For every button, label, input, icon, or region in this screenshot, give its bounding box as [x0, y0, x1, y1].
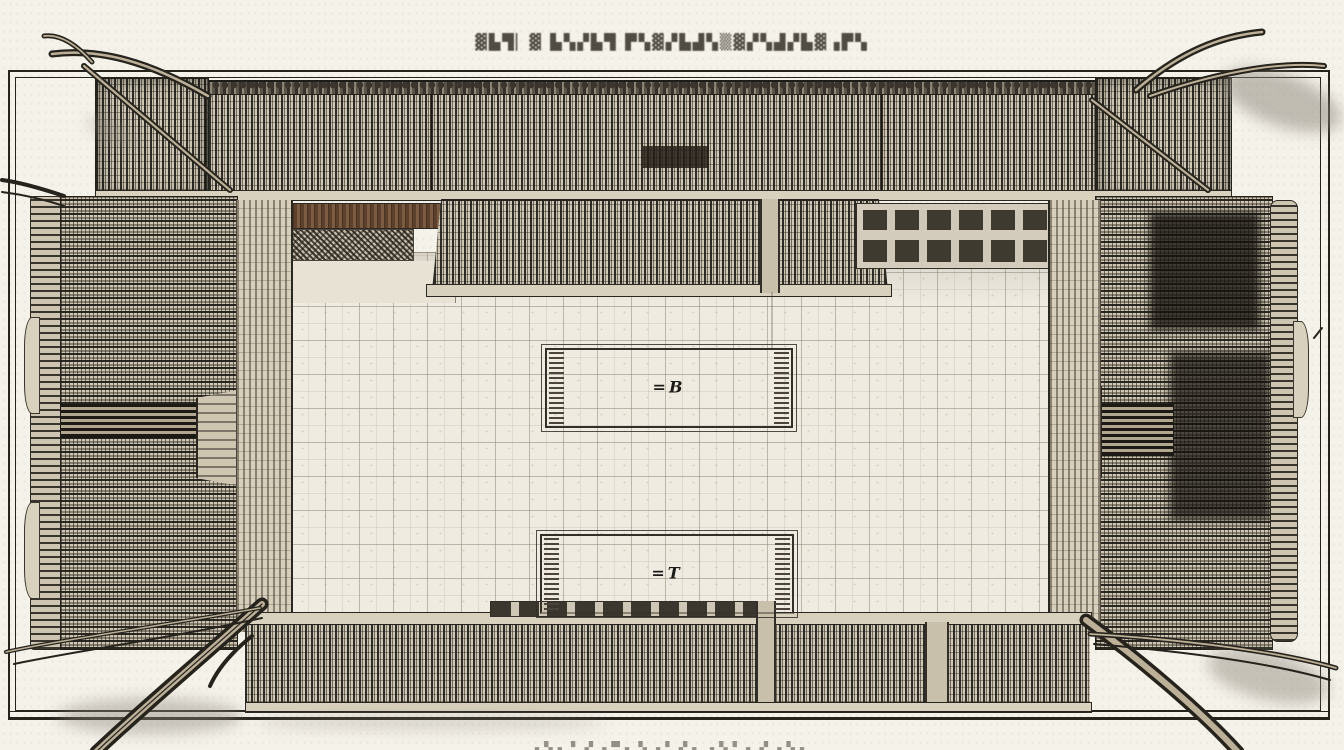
- north-roof-seam: [880, 94, 882, 192]
- west-outer-rafter-edge: [30, 196, 62, 650]
- bottom-caption-clipped: ▗▚▖▘▞▗▀▖▚▗▘▞▖▗▚▘▖▞▗▚▖: [0, 741, 1344, 750]
- inner-north-roof-tiles: [432, 199, 888, 291]
- south-roof-tiles: [245, 624, 1090, 711]
- east-inner-eave-edge: [1048, 200, 1101, 632]
- plan-title-text: ▓▙▜▏▓ ▙▚▞▙▜ ▛▚▓▞▙▟▚▒▓▞▚▟▞▙▓▗▛▚: [0, 33, 1344, 51]
- inner-north-eave-edge: [426, 284, 892, 297]
- lower-platform-label: =T: [542, 564, 792, 583]
- east-outer-rafter-edge: [1270, 200, 1298, 642]
- architectural-plan-canvas: =B =T: [0, 0, 1344, 750]
- upper-platform-label: =B: [547, 378, 791, 397]
- north-roof-seam: [205, 94, 207, 192]
- east-roof-shadow-patch: [1170, 352, 1270, 520]
- lower-platform: =T: [540, 534, 794, 614]
- east-stair-slats: [1092, 404, 1174, 456]
- south-pillar: [756, 601, 776, 711]
- west-eave-bracket: [24, 502, 40, 599]
- courtyard-pillar: [760, 199, 780, 293]
- upper-platform: =B: [545, 348, 793, 428]
- northwest-corner-tower-roof: [95, 78, 209, 198]
- east-eave-bracket: [1293, 321, 1309, 418]
- west-eave-bracket: [24, 317, 40, 414]
- frame-bottom-line: [8, 717, 1328, 719]
- east-roof-shadow-patch: [1150, 212, 1260, 330]
- north-roof-vent: [643, 146, 709, 168]
- northeast-corner-tower-roof: [1095, 78, 1232, 198]
- frame-bottom-line: [8, 711, 1328, 712]
- south-pillar: [925, 622, 949, 712]
- north-roof-tiles: [95, 94, 1230, 195]
- north-roof-seam: [430, 94, 432, 192]
- west-inner-eave-edge: [236, 200, 293, 632]
- porch-lattice-panel: [272, 229, 414, 261]
